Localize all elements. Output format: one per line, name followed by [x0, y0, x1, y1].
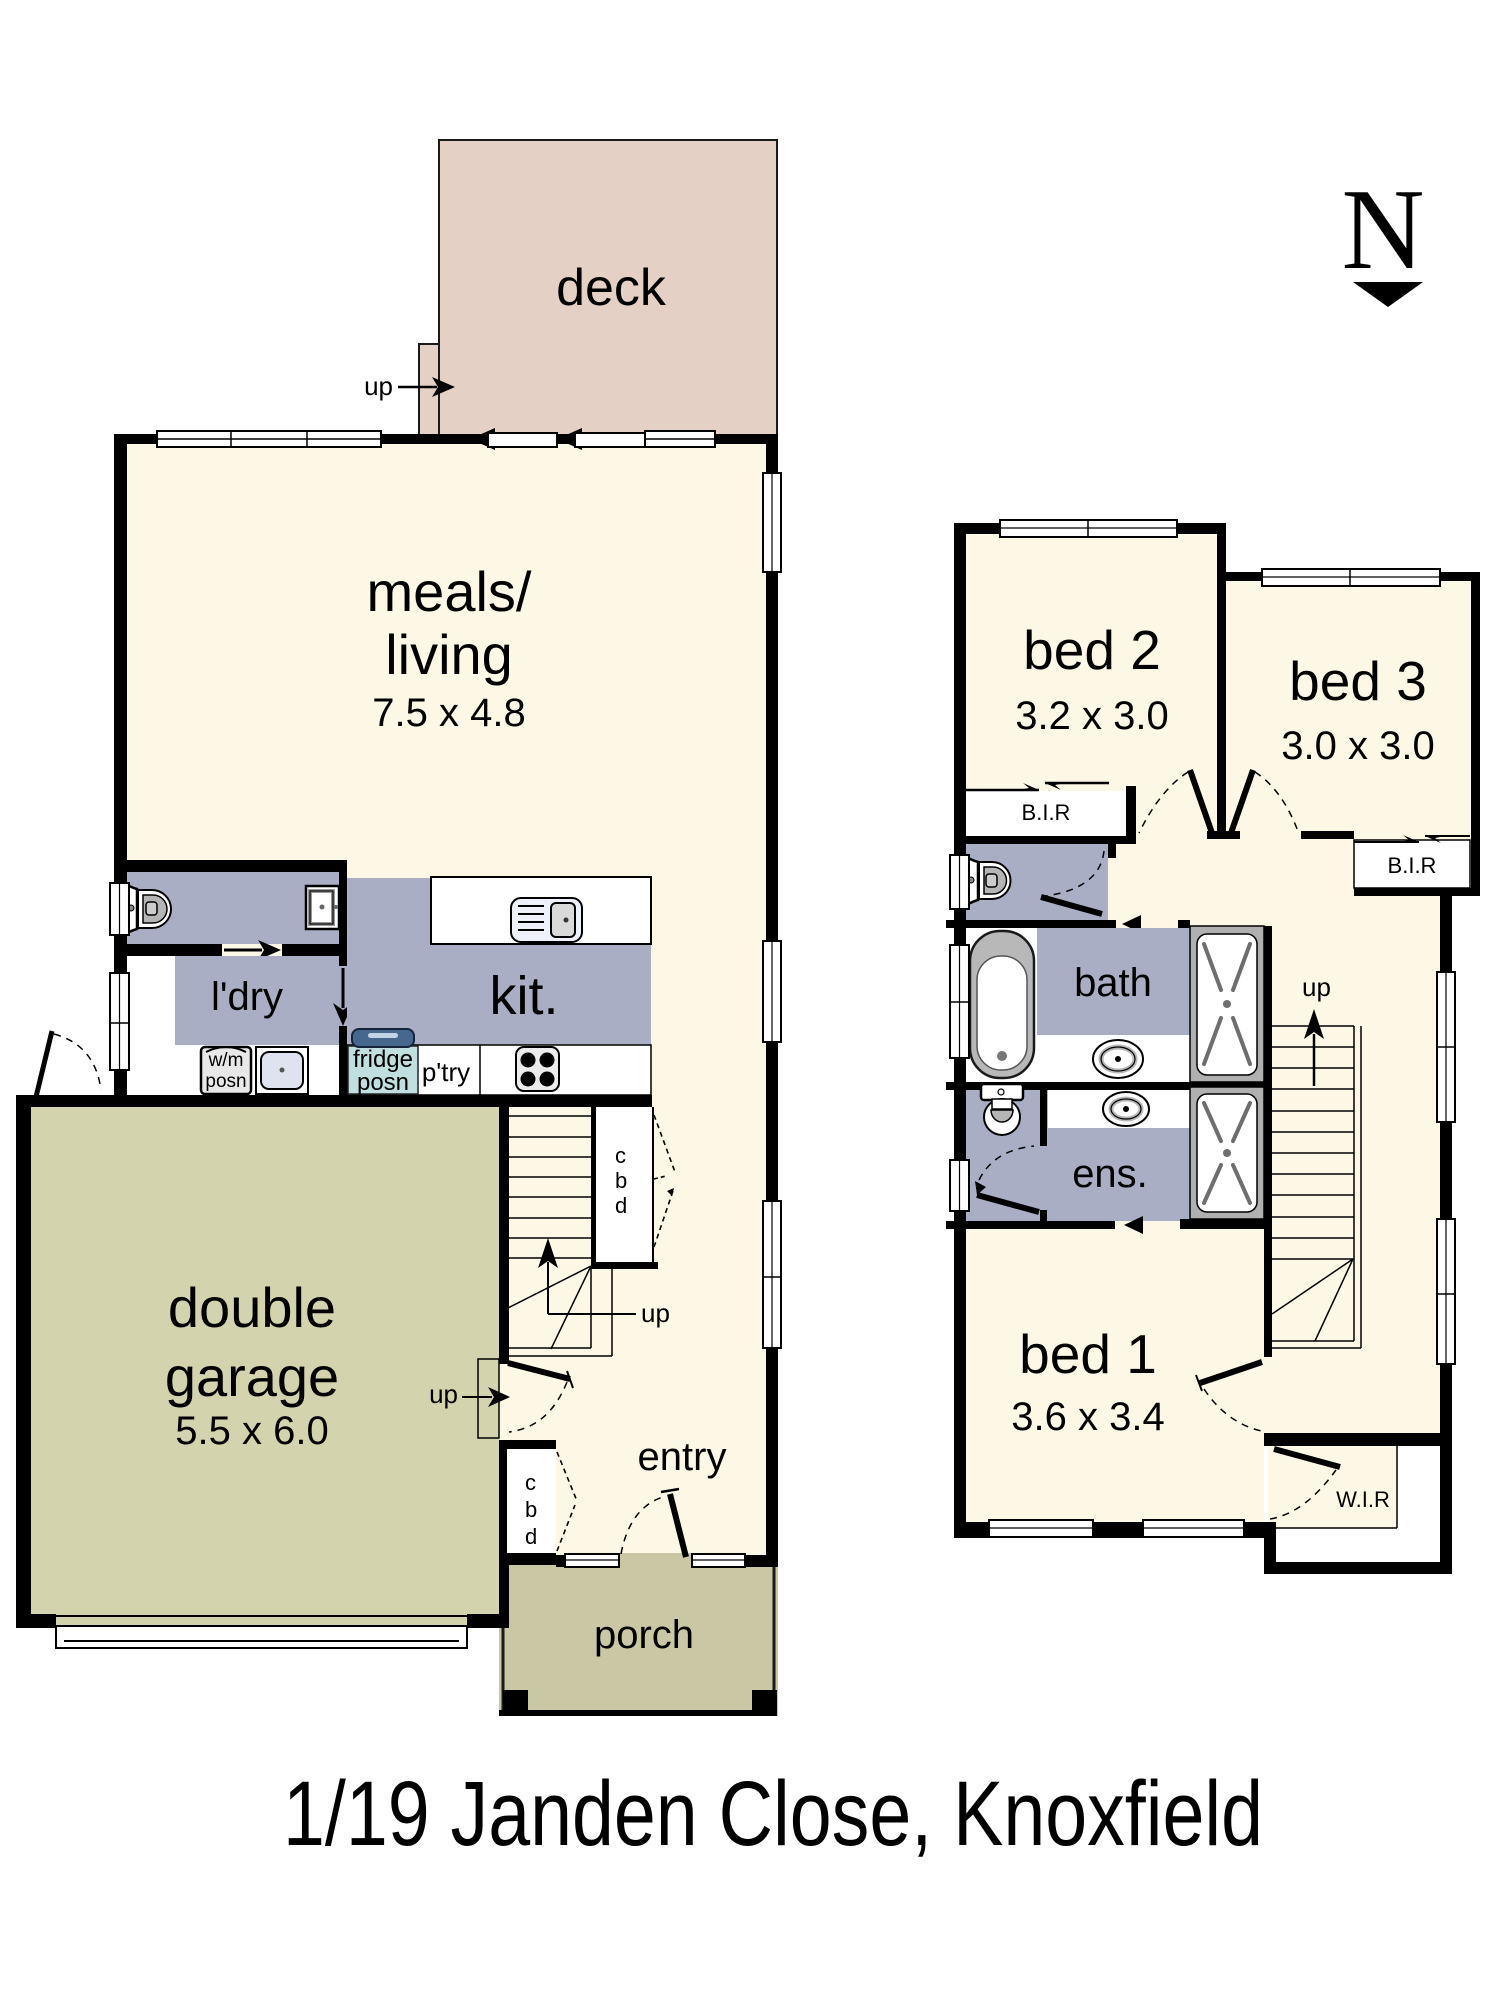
svg-text:1/19 Janden Close, Knoxfield: 1/19 Janden Close, Knoxfield	[283, 1763, 1263, 1865]
svg-text:3.6 x 3.4: 3.6 x 3.4	[1011, 1395, 1164, 1439]
svg-text:d: d	[525, 1524, 537, 1549]
svg-text:posn: posn	[205, 1071, 246, 1092]
svg-text:porch: porch	[594, 1613, 694, 1657]
svg-text:bath: bath	[1074, 961, 1152, 1005]
svg-text:up: up	[364, 371, 393, 401]
svg-text:up: up	[641, 1298, 670, 1328]
svg-text:w/m: w/m	[208, 1050, 244, 1071]
svg-text:b: b	[615, 1168, 627, 1193]
svg-text:3.2 x 3.0: 3.2 x 3.0	[1015, 694, 1168, 738]
svg-text:double: double	[168, 1276, 336, 1339]
svg-text:l'dry: l'dry	[211, 975, 283, 1019]
svg-text:p'try: p'try	[422, 1057, 470, 1087]
svg-text:garage: garage	[165, 1345, 339, 1408]
svg-text:W.I.R: W.I.R	[1336, 1487, 1390, 1512]
svg-text:kit.: kit.	[489, 966, 558, 1026]
svg-text:posn: posn	[357, 1069, 409, 1096]
svg-text:N: N	[1341, 166, 1424, 293]
svg-text:living: living	[385, 623, 513, 686]
svg-text:deck: deck	[556, 259, 667, 317]
svg-text:5.5 x 6.0: 5.5 x 6.0	[175, 1409, 328, 1453]
svg-text:entry: entry	[638, 1435, 727, 1479]
svg-text:d: d	[615, 1193, 627, 1218]
svg-text:7.5 x 4.8: 7.5 x 4.8	[372, 691, 525, 735]
svg-text:up: up	[429, 1379, 458, 1409]
svg-text:c: c	[615, 1143, 626, 1168]
svg-text:up: up	[1302, 972, 1331, 1002]
svg-text:ens.: ens.	[1072, 1152, 1148, 1196]
svg-text:meals/: meals/	[367, 560, 532, 623]
svg-text:b: b	[525, 1497, 537, 1522]
svg-text:bed 2: bed 2	[1023, 619, 1161, 681]
svg-text:B.I.R: B.I.R	[1388, 853, 1437, 878]
svg-text:3.0 x 3.0: 3.0 x 3.0	[1281, 724, 1434, 768]
svg-text:bed 3: bed 3	[1289, 650, 1427, 712]
svg-text:c: c	[525, 1470, 536, 1495]
svg-text:B.I.R: B.I.R	[1022, 800, 1071, 825]
svg-text:bed 1: bed 1	[1019, 1323, 1157, 1385]
